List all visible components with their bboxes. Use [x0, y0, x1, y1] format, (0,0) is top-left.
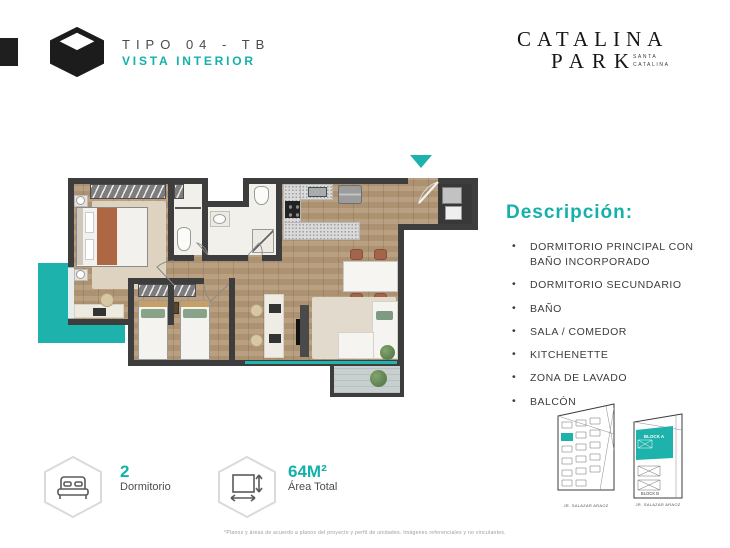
- list-item: ZONA DE LAVADO: [506, 371, 718, 386]
- door-swings: [38, 155, 490, 400]
- site-plan-a: JR. SALAZAR ARAOZ: [558, 404, 614, 508]
- brand-logo-subtext: SANTA CATALINA: [633, 54, 670, 69]
- block-a-region: [636, 426, 673, 460]
- list-item: DORMITORIO PRINCIPAL CON BAÑO INCORPORAD…: [506, 240, 718, 270]
- left-edge-tab: [0, 38, 18, 66]
- brand-logo-line2: PARK: [551, 49, 637, 74]
- cube-logo-icon: [48, 25, 106, 79]
- brand-logo: CATALINA PARK SANTA CATALINA: [505, 27, 720, 82]
- disclaimer: *Planos y áreas de acuerdo a planos del …: [0, 530, 730, 536]
- floor-plan: [38, 155, 490, 400]
- list-item: SALA / COMEDOR: [506, 325, 718, 340]
- unit-view-subtitle: VISTA INTERIOR: [122, 54, 256, 68]
- bedrooms-label: Dormitorio: [120, 481, 171, 493]
- list-item: DORMITORIO SECUNDARIO: [506, 278, 718, 293]
- plan-a-caption: JR. SALAZAR ARAOZ: [563, 503, 608, 508]
- area-value: 64M²: [288, 462, 327, 482]
- list-item: KITCHENETTE: [506, 348, 718, 363]
- list-item: BAÑO: [506, 302, 718, 317]
- bedrooms-value: 2: [120, 462, 129, 482]
- highlighted-unit: [561, 433, 573, 441]
- site-plan-b: BLOCK A BLOCK B JR. SALAZAR ARAOZ: [634, 414, 682, 507]
- area-label: Área Total: [288, 481, 337, 493]
- site-plans: JR. SALAZAR ARAOZ BLOCK A BLOCK B JR. SA…: [554, 400, 694, 512]
- page: TIPO 04 - TB VISTA INTERIOR CATALINA PAR…: [0, 0, 730, 548]
- area-hexagon: [218, 456, 276, 518]
- description-title: Descripción:: [506, 202, 718, 224]
- block-a-label: BLOCK A: [644, 434, 665, 439]
- plan-b-caption: JR. SALAZAR ARAOZ: [635, 502, 680, 507]
- unit-type-title: TIPO 04 - TB: [122, 37, 270, 52]
- block-b-label: BLOCK B: [641, 491, 659, 496]
- description-list: DORMITORIO PRINCIPAL CON BAÑO INCORPORAD…: [506, 240, 718, 410]
- description-panel: Descripción: DORMITORIO PRINCIPAL CON BA…: [506, 202, 718, 418]
- bedrooms-hexagon: [44, 456, 102, 518]
